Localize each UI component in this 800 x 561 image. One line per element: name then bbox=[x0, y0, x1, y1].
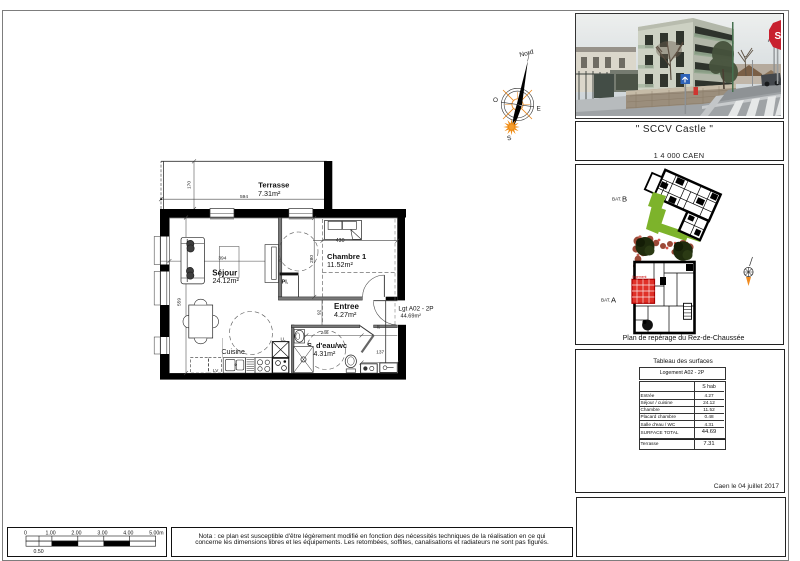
svg-text:A: A bbox=[611, 295, 617, 304]
svg-text:137: 137 bbox=[376, 349, 384, 355]
svg-text:4.27m²: 4.27m² bbox=[334, 310, 357, 319]
svg-text:44.69m²: 44.69m² bbox=[401, 314, 422, 320]
svg-text:594: 594 bbox=[240, 194, 248, 200]
svg-text:Lgt A02 - 2P: Lgt A02 - 2P bbox=[398, 306, 433, 313]
svg-text:Cuisine: Cuisine bbox=[222, 349, 245, 356]
svg-text:7.31m²: 7.31m² bbox=[258, 189, 281, 198]
svg-text:92: 92 bbox=[317, 309, 323, 315]
svg-text:Nord: Nord bbox=[519, 49, 535, 59]
svg-text:246: 246 bbox=[321, 330, 329, 336]
svg-text:4.31m²: 4.31m² bbox=[314, 351, 336, 358]
svg-text:430: 430 bbox=[336, 238, 345, 244]
svg-text:S: S bbox=[774, 31, 781, 42]
svg-text:394: 394 bbox=[218, 256, 226, 262]
svg-text:BAT.: BAT. bbox=[612, 196, 621, 201]
svg-text:280: 280 bbox=[309, 255, 315, 263]
svg-text:S: S bbox=[506, 135, 512, 143]
svg-text:LL: LL bbox=[281, 337, 287, 342]
svg-text:170: 170 bbox=[187, 181, 193, 189]
svg-text:24.12m²: 24.12m² bbox=[213, 276, 240, 285]
svg-text:BAT.: BAT. bbox=[601, 297, 610, 302]
svg-text:O: O bbox=[493, 97, 498, 104]
svg-text:26: 26 bbox=[377, 325, 381, 329]
svg-text:LV: LV bbox=[213, 368, 219, 373]
svg-text:logement: logement bbox=[632, 274, 646, 278]
svg-text:B: B bbox=[622, 194, 627, 203]
svg-text:559: 559 bbox=[176, 298, 182, 306]
svg-text:11.52m²: 11.52m² bbox=[327, 260, 353, 269]
svg-text:Pl.: Pl. bbox=[282, 280, 289, 286]
svg-text:E: E bbox=[537, 106, 541, 113]
